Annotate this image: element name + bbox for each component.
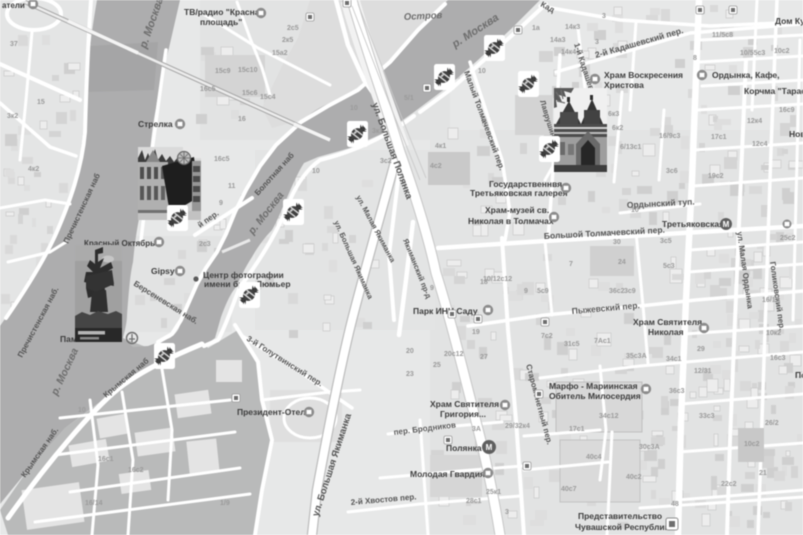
svg-text:16: 16 (238, 116, 246, 123)
svg-text:Полянка: Полянка (446, 443, 482, 453)
svg-text:29/32к4: 29/32к4 (505, 423, 530, 430)
svg-text:15с4: 15с4 (260, 94, 276, 101)
svg-text:40с2: 40с2 (626, 474, 642, 481)
svg-text:Ордынка, Кафе,: Ордынка, Кафе, (712, 70, 780, 80)
svg-text:37: 37 (10, 41, 18, 48)
svg-text:16с5: 16с5 (200, 86, 216, 93)
svg-text:9: 9 (524, 288, 528, 295)
svg-text:26/2: 26/2 (765, 420, 779, 427)
svg-text:10с2: 10с2 (774, 48, 790, 55)
svg-text:2с3: 2с3 (199, 241, 211, 248)
svg-text:5с9: 5с9 (537, 288, 549, 295)
svg-text:25: 25 (433, 362, 441, 369)
svg-text:12/31: 12/31 (694, 368, 712, 375)
svg-text:Пос: Пос (795, 370, 803, 380)
svg-text:15с9: 15с9 (215, 68, 231, 75)
svg-text:7: 7 (569, 261, 573, 268)
svg-text:3: 3 (602, 13, 606, 20)
svg-text:10: 10 (312, 168, 320, 175)
svg-text:19с2: 19с2 (708, 173, 724, 180)
svg-text:3к1: 3к1 (372, 128, 383, 135)
svg-text:29: 29 (697, 346, 705, 353)
svg-text:16/14: 16/14 (85, 500, 103, 507)
svg-text:10: 10 (350, 105, 358, 112)
svg-text:10/55с3: 10/55с3 (740, 50, 765, 57)
svg-text:16/13: 16/13 (762, 297, 780, 304)
svg-text:21: 21 (759, 470, 767, 477)
svg-text:Марфо - Мариинская: Марфо - Мариинская (549, 381, 638, 391)
svg-text:27: 27 (480, 354, 488, 361)
svg-text:Корчма "Тарас Б: Корчма "Тарас Б (744, 86, 803, 96)
svg-text:24: 24 (618, 259, 626, 266)
svg-text:15а2: 15а2 (272, 50, 288, 57)
svg-text:30: 30 (613, 239, 621, 246)
svg-text:площадь": площадь" (200, 17, 242, 27)
svg-text:25к1: 25к1 (486, 489, 501, 496)
svg-text:Третьяковская галерея: Третьяковская галерея (470, 188, 568, 198)
svg-text:Храм-музей св.: Храм-музей св. (485, 205, 549, 215)
svg-text:25с2: 25с2 (780, 235, 796, 242)
svg-text:2с5: 2с5 (287, 25, 299, 32)
svg-text:10: 10 (78, 407, 86, 414)
svg-text:11/5с8: 11/5с8 (712, 32, 733, 39)
svg-text:Храм Воскресения: Храм Воскресения (604, 70, 683, 80)
svg-text:7Ас1: 7Ас1 (594, 338, 611, 345)
svg-text:10: 10 (631, 207, 639, 214)
svg-text:ТВ/радио "Красная: ТВ/радио "Красная (184, 7, 265, 17)
svg-text:36с2: 36с2 (609, 288, 625, 295)
svg-text:5/1: 5/1 (404, 95, 414, 102)
svg-text:33с3: 33с3 (699, 413, 715, 420)
svg-text:Нов: Нов (789, 129, 803, 139)
svg-text:1а: 1а (532, 25, 540, 32)
svg-text:17с1: 17с1 (711, 134, 727, 141)
svg-text:12с4: 12с4 (752, 141, 768, 148)
svg-text:34с1: 34с1 (666, 356, 682, 363)
svg-text:15с6: 15с6 (242, 90, 258, 97)
svg-text:Христова: Христова (604, 80, 644, 90)
svg-text:15: 15 (37, 99, 45, 106)
svg-text:Парк ИНН Саду: Парк ИНН Саду (413, 306, 478, 316)
svg-text:40с4: 40с4 (586, 454, 602, 461)
svg-text:Николая в Толмачах: Николая в Толмачах (468, 216, 554, 226)
svg-text:10: 10 (478, 68, 486, 75)
svg-text:4к2: 4к2 (28, 166, 39, 173)
svg-text:16с9: 16с9 (779, 107, 795, 114)
svg-text:6/13с1: 6/13с1 (620, 144, 642, 151)
svg-text:5с3: 5с3 (663, 263, 675, 270)
svg-text:Дом Ку: Дом Ку (775, 16, 803, 26)
svg-text:36с3: 36с3 (669, 388, 685, 395)
svg-text:17с1: 17с1 (569, 426, 585, 433)
svg-text:Храм Святителя: Храм Святителя (633, 317, 702, 327)
svg-text:3: 3 (595, 39, 599, 46)
svg-text:31с5: 31с5 (564, 341, 580, 348)
svg-text:Храм Святителя: Храм Святителя (430, 399, 499, 409)
svg-text:28с1: 28с1 (466, 498, 482, 505)
svg-text:15с10: 15с10 (238, 67, 258, 74)
svg-text:Молодая Гвардия: Молодая Гвардия (410, 469, 485, 479)
svg-text:3с5: 3с5 (660, 238, 672, 245)
svg-text:16с5: 16с5 (214, 156, 230, 163)
svg-text:8: 8 (693, 55, 697, 62)
svg-text:7с2: 7с2 (541, 333, 553, 340)
svg-text:9: 9 (430, 285, 434, 292)
svg-text:40с7: 40с7 (561, 486, 577, 493)
svg-text:10к2: 10к2 (766, 330, 781, 337)
svg-text:M: M (486, 443, 493, 452)
svg-text:3с2: 3с2 (380, 158, 392, 165)
svg-text:3к2: 3к2 (7, 113, 18, 120)
svg-text:M: M (723, 220, 730, 229)
svg-text:Пам: Пам (60, 334, 77, 344)
svg-text:Чувашской Республики: Чувашской Республики (575, 522, 674, 532)
svg-text:34с12: 34с12 (599, 413, 619, 420)
svg-text:16/9с3: 16/9с3 (659, 133, 681, 140)
svg-text:2к5: 2к5 (282, 37, 293, 44)
svg-text:Представительство: Представительство (578, 511, 662, 521)
svg-text:Президент-Отель: Президент-Отель (237, 407, 311, 417)
svg-text:14к4: 14к4 (561, 49, 576, 56)
svg-text:Люмьер: Люмьер (256, 279, 291, 289)
svg-text:6к3: 6к3 (608, 111, 619, 118)
svg-text:6к2: 6к2 (612, 125, 623, 132)
svg-text:20: 20 (406, 348, 414, 355)
svg-text:3с6: 3с6 (666, 168, 678, 175)
svg-text:12к4: 12к4 (747, 118, 762, 125)
svg-text:16с3: 16с3 (770, 355, 786, 362)
svg-text:18: 18 (480, 279, 488, 286)
svg-text:9: 9 (219, 200, 223, 207)
svg-text:4с2: 4с2 (430, 163, 442, 170)
svg-text:Стрелка: Стрелка (138, 119, 173, 129)
svg-text:14к3: 14к3 (565, 24, 580, 31)
svg-text:1/9: 1/9 (220, 500, 230, 507)
svg-text:10с2: 10с2 (744, 441, 760, 448)
svg-text:3А: 3А (472, 426, 481, 433)
svg-text:14а3: 14а3 (550, 37, 566, 44)
svg-text:Николая: Николая (648, 327, 684, 337)
svg-text:Gipsy: Gipsy (151, 266, 175, 276)
svg-text:16с2: 16с2 (128, 467, 144, 474)
svg-text:11: 11 (228, 183, 236, 190)
svg-text:16с1: 16с1 (98, 456, 114, 463)
svg-text:4к1: 4к1 (435, 143, 446, 150)
svg-text:20с12: 20с12 (444, 351, 464, 358)
svg-text:23: 23 (406, 371, 414, 378)
svg-text:3: 3 (505, 509, 509, 516)
svg-text:Остров: Остров (404, 10, 443, 23)
svg-text:35с3А: 35с3А (626, 353, 647, 360)
svg-text:Обитель Милосердия: Обитель Милосердия (549, 391, 641, 401)
svg-text:22с2: 22с2 (721, 481, 737, 488)
svg-text:19: 19 (472, 329, 480, 336)
svg-text:30с3А: 30с3А (639, 444, 660, 451)
svg-text:Третьяковская: Третьяковская (662, 219, 724, 229)
svg-text:48: 48 (671, 501, 679, 508)
svg-text:3с9: 3с9 (624, 288, 636, 295)
svg-text:атели: атели (2, 1, 25, 10)
svg-text:Григория...: Григория... (440, 409, 486, 419)
